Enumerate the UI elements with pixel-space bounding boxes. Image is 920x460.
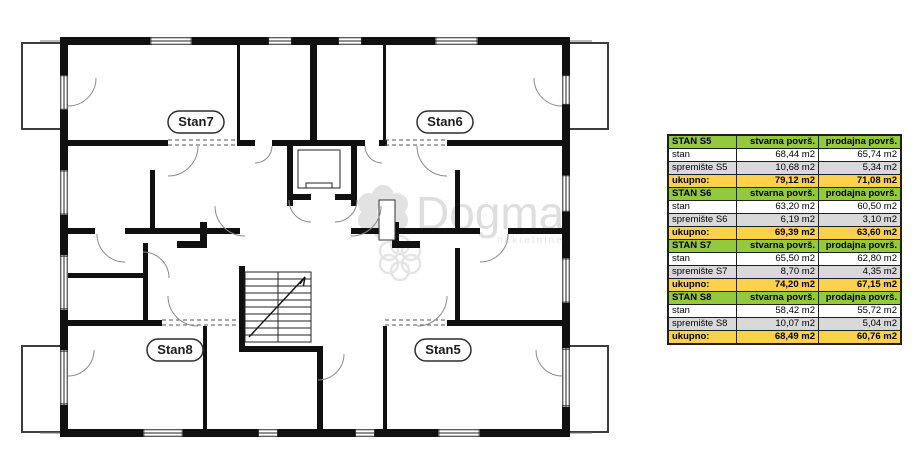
table-row: spremište S8 10,07 m2 5,04 m2: [668, 318, 901, 331]
apartment-label-stan7: Stan7: [168, 111, 224, 133]
col-stvarna: stvarna površ.: [737, 292, 819, 305]
table-row: stan 63,20 m2 60,50 m2: [668, 201, 901, 214]
col-prodajna: prodajna površ.: [819, 135, 902, 149]
group-name: STAN S6: [668, 188, 737, 201]
table-total-row: ukupno: 68,49 m2 60,76 m2: [668, 331, 901, 345]
table-group-header: STAN S6 stvarna površ. prodajna površ.: [668, 188, 901, 201]
group-name: STAN S7: [668, 240, 737, 253]
table-row: stan 58,42 m2 55,72 m2: [668, 305, 901, 318]
group-name: STAN S8: [668, 292, 737, 305]
real-estate-floorplan-page: Dogma nekretnine: [0, 0, 920, 460]
table-group-header: STAN S5 stvarna površ. prodajna površ.: [668, 135, 901, 149]
elevator-shaft: [287, 140, 357, 206]
stan6-label: Stan6: [427, 114, 462, 129]
interior-walls: [68, 45, 562, 437]
col-prodajna: prodajna površ.: [819, 292, 902, 305]
col-stvarna: stvarna površ.: [737, 188, 819, 201]
table-row: spremište S7 8,70 m2 4,35 m2: [668, 266, 901, 279]
table-total-row: ukupno: 69,39 m2 63,60 m2: [668, 227, 901, 240]
apartment-label-stan6: Stan6: [417, 111, 473, 133]
col-prodajna: prodajna površ.: [819, 240, 902, 253]
col-stvarna: stvarna površ.: [737, 240, 819, 253]
table-row: spremište S6 6,19 m2 3,10 m2: [668, 214, 901, 227]
apartment-label-stan8: Stan8: [147, 339, 203, 361]
table-row: stan 68,44 m2 65,74 m2: [668, 149, 901, 162]
area-table: STAN S5 stvarna površ. prodajna površ. s…: [667, 134, 902, 345]
table-total-row: ukupno: 74,20 m2 67,15 m2: [668, 279, 901, 292]
table-group-header: STAN S8 stvarna površ. prodajna površ.: [668, 292, 901, 305]
apartment-label-stan5: Stan5: [415, 339, 471, 361]
col-prodajna: prodajna površ.: [819, 188, 902, 201]
staircase: [245, 272, 311, 342]
stan5-label: Stan5: [425, 342, 460, 357]
table-group-header: STAN S7 stvarna površ. prodajna površ.: [668, 240, 901, 253]
col-stvarna: stvarna površ.: [737, 135, 819, 149]
table-row: stan 65,50 m2 62,80 m2: [668, 253, 901, 266]
stan8-label: Stan8: [157, 342, 192, 357]
table-row: spremište S5 10,68 m2 5,34 m2: [668, 162, 901, 175]
group-name: STAN S5: [668, 135, 737, 149]
table-total-row: ukupno: 79,12 m2 71,08 m2: [668, 175, 901, 188]
floor-plan: Dogma nekretnine: [0, 0, 660, 460]
stan7-label: Stan7: [178, 114, 213, 129]
